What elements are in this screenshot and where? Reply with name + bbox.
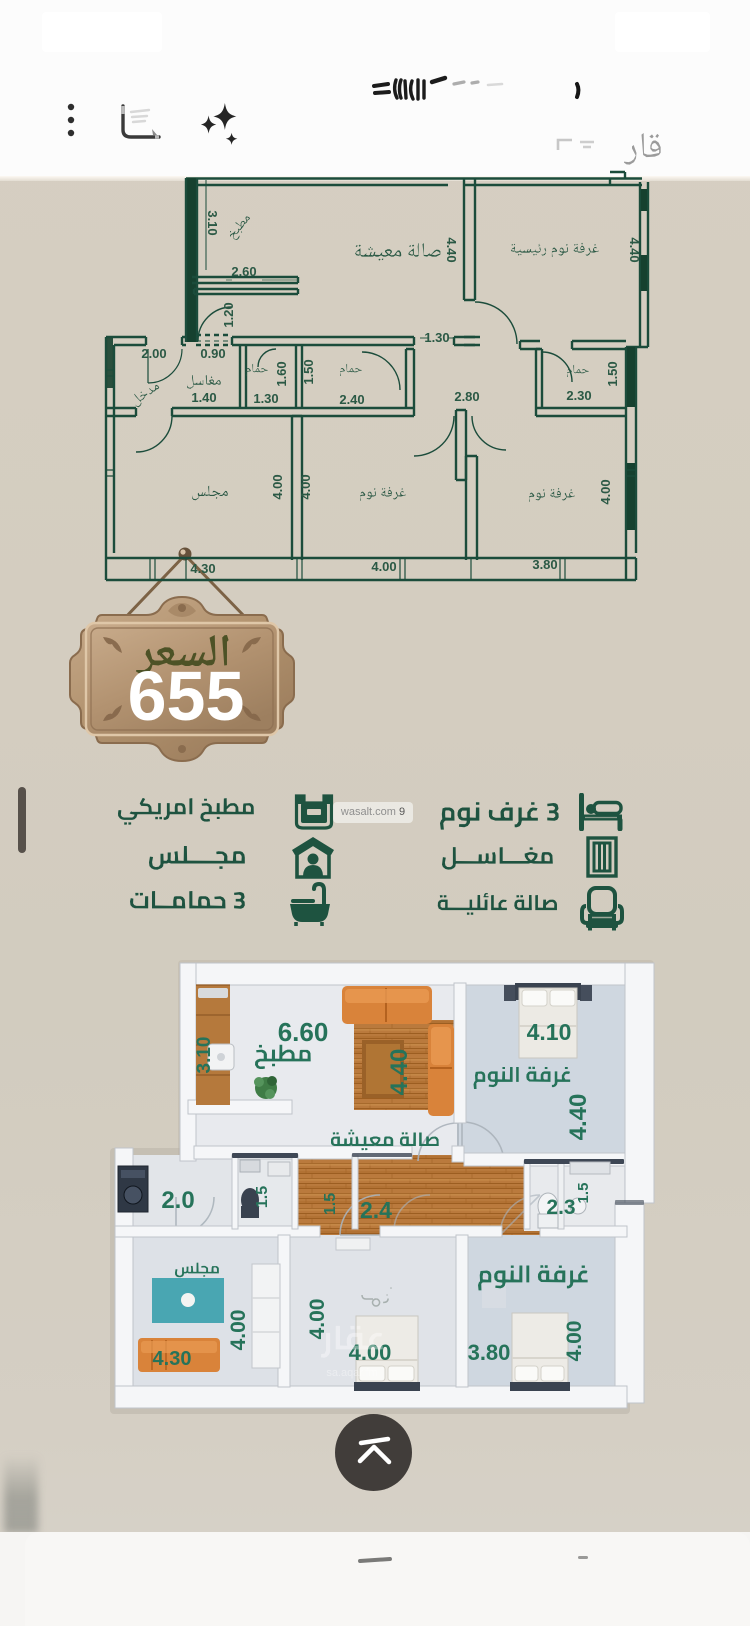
svg-text:1.30: 1.30 [253, 391, 278, 406]
svg-text:1.5: 1.5 [575, 1183, 592, 1204]
svg-text:3.10: 3.10 [194, 1037, 215, 1074]
svg-text:2.40: 2.40 [339, 392, 364, 407]
svg-text:6.60: 6.60 [278, 1017, 329, 1047]
svg-text:4.00: 4.00 [306, 1299, 329, 1340]
svg-text:4.00: 4.00 [371, 559, 396, 574]
svg-text:4.10: 4.10 [527, 1019, 572, 1045]
svg-text:2.0: 2.0 [161, 1187, 194, 1214]
svg-text:2.4: 2.4 [360, 1197, 392, 1223]
svg-text:1.20: 1.20 [221, 302, 236, 327]
svg-text:1.60: 1.60 [274, 361, 289, 386]
svg-text:2.00: 2.00 [141, 346, 166, 361]
svg-text:4.30: 4.30 [153, 1348, 192, 1370]
svg-text:655: 655 [128, 657, 245, 735]
svg-text:3.10: 3.10 [205, 210, 220, 235]
svg-text:1.5: 1.5 [322, 1193, 339, 1215]
svg-text:4.00: 4.00 [270, 474, 285, 499]
svg-text:4.00: 4.00 [227, 1310, 250, 1351]
svg-text:4.40: 4.40 [444, 237, 459, 262]
svg-text:4.40: 4.40 [565, 1094, 592, 1141]
svg-text:1.50: 1.50 [605, 361, 620, 386]
svg-text:1.30: 1.30 [424, 330, 449, 345]
svg-text:sa.aqar.fm: sa.aqar.fm [326, 1367, 377, 1379]
svg-text:4.00: 4.00 [563, 1321, 586, 1362]
svg-text:4.40: 4.40 [627, 237, 642, 262]
svg-text:0.90: 0.90 [200, 346, 225, 361]
svg-text:4.40: 4.40 [386, 1049, 413, 1096]
svg-text:4.00: 4.00 [298, 474, 313, 499]
svg-text:1.5: 1.5 [254, 1186, 271, 1208]
svg-text:1.50: 1.50 [301, 359, 316, 384]
svg-text:2.30: 2.30 [566, 388, 591, 403]
svg-text:4.30: 4.30 [190, 561, 215, 576]
svg-text:2.80: 2.80 [454, 389, 479, 404]
svg-text:3.80: 3.80 [532, 557, 557, 572]
svg-text:2.3: 2.3 [546, 1196, 575, 1219]
svg-text:3.80: 3.80 [468, 1340, 511, 1365]
svg-text:4.00: 4.00 [598, 479, 613, 504]
svg-text:1.40: 1.40 [191, 390, 216, 405]
svg-text:2.60: 2.60 [231, 264, 256, 279]
